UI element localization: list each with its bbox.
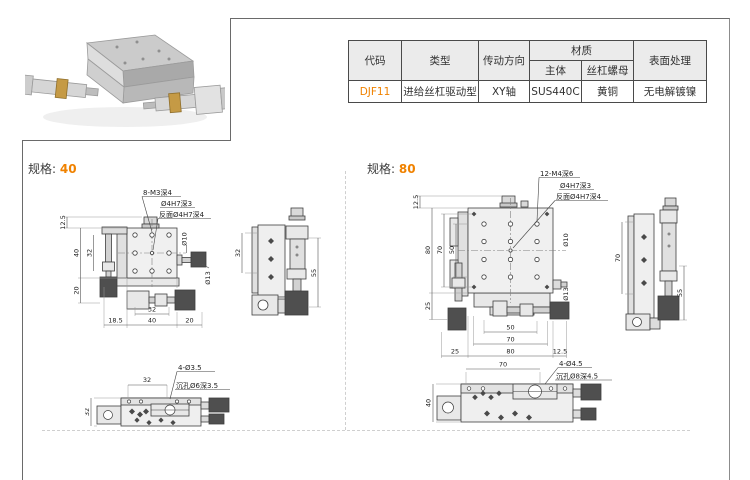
dim-50-left: 50 (448, 246, 456, 254)
stage40-top-parts (100, 217, 206, 310)
cell-material-body: SUS440C (530, 81, 582, 103)
cell-surface: 无电解镀镍 (634, 81, 707, 103)
dim-80-bottom: 80 (506, 348, 514, 356)
spec-table: 代码 类型 传动方向 材质 表面处理 主体 丝杠螺母 DJF11 进给丝杠驱动型… (348, 40, 707, 103)
drawing-80-bottom-view: 70 4-Ø4.5 沉孔Ø8深4.5 40 (425, 358, 635, 432)
brass-nut-right (169, 93, 182, 113)
table-row: DJF11 进给丝杠驱动型 XY轴 SUS440C 黄铜 无电解镀镍 (349, 81, 707, 103)
dim-dia10: Ø10 (181, 232, 189, 245)
callout-8-m3: 8-M3深4 (143, 188, 172, 197)
callout-cbore-d6: 沉孔Ø6深3.5 (176, 381, 218, 390)
col-header-material-nut: 丝杠螺母 (582, 61, 634, 81)
callout-4h7-80: Ø4H7深3 (560, 181, 591, 190)
dim-70-left: 70 (436, 246, 444, 254)
col-header-type: 类型 (402, 41, 479, 81)
dim-70-side: 70 (614, 254, 622, 262)
dim-32-bottom: 32 (148, 306, 156, 314)
drawing-40-top-view: 12.5 40 32 20 32 18.5 40 20 Ø10 Ø13 8-M3… (55, 183, 240, 333)
callout-4-d45: 4-Ø4.5 (559, 360, 583, 368)
dim-50-bottom: 50 (506, 324, 514, 332)
dim-20-left: 20 (73, 286, 81, 294)
product-photo-box (22, 18, 231, 141)
dim-12-5-bottom: 12.5 (553, 348, 567, 356)
dim-40-bottom: 40 (148, 317, 156, 325)
callout-4h7-back: 反面Ø4H7深4 (159, 210, 205, 219)
spec40-label-value: 40 (60, 162, 77, 176)
dim-20-bottom: 20 (185, 317, 193, 325)
dim-40-left-bottom: 40 (425, 399, 433, 407)
stage80-top-parts (448, 196, 569, 330)
dim-32-top: 32 (143, 376, 151, 384)
drawing-80-side-view: 70 55 (612, 192, 692, 332)
dim-80-left: 80 (424, 246, 432, 254)
drawing-40-bottom-view: 32 4-Ø3.5 沉孔Ø6深3.5 32 (85, 340, 250, 432)
callout-4-d35: 4-Ø3.5 (178, 364, 202, 372)
dim-55-side: 55 (310, 269, 318, 277)
dim-32-left: 32 (86, 249, 94, 257)
dim-70-top: 70 (499, 361, 507, 369)
brass-nut-left (55, 79, 68, 99)
dim-32-left-bottom: 32 (85, 408, 91, 416)
col-header-material-body: 主体 (530, 61, 582, 81)
dim-25-left: 25 (424, 302, 432, 310)
cell-material-nut: 黄铜 (582, 81, 634, 103)
dim-40-left: 40 (73, 249, 81, 257)
cell-type: 进给丝杠驱动型 (402, 81, 479, 103)
drawing-80-top-view: 12.5 80 70 50 25 50 70 25 80 12.5 Ø10 Ø1… (390, 168, 620, 368)
stage80-side-foot-hole (633, 318, 642, 327)
cell-direction: XY轴 (479, 81, 530, 103)
col-header-surface: 表面处理 (634, 41, 707, 81)
cell-code: DJF11 (349, 81, 402, 103)
stage40-bottom-parts (97, 398, 229, 426)
dim-32-side: 32 (234, 249, 242, 257)
micrometer-left (25, 75, 99, 102)
callout-12-m4: 12-M4深6 (540, 169, 574, 178)
dim-25-bottom: 25 (451, 348, 459, 356)
col-header-material: 材质 (530, 41, 634, 61)
stage80-bottom-parts (437, 384, 601, 422)
callout-4h7-back-80: 反面Ø4H7深4 (556, 192, 602, 201)
dim-dia13-80: Ø13 (562, 287, 570, 300)
dim-55-side80: 55 (676, 289, 684, 297)
col-header-code: 代码 (349, 41, 402, 81)
photo-shadow (43, 107, 207, 127)
stage40-side-foot-hole (258, 300, 268, 310)
drawing-40-side-view: 32 55 (228, 193, 333, 333)
dim-70-bottom: 70 (506, 336, 514, 344)
stage80-side-parts (626, 198, 679, 330)
col-header-direction: 传动方向 (479, 41, 530, 81)
product-photo (25, 21, 225, 135)
section-divider-vertical (345, 171, 346, 430)
stage40-side-parts (252, 208, 308, 315)
spec40-label-prefix: 规格: (28, 162, 56, 176)
dim-dia10-80: Ø10 (562, 233, 570, 246)
dim-12-5: 12.5 (59, 215, 67, 229)
callout-cbore-d8: 沉孔Ø8深4.5 (556, 372, 598, 381)
callout-4h7: Ø4H7深3 (161, 199, 192, 208)
dim-18-5: 18.5 (108, 317, 122, 325)
spec40-label: 规格: 40 (28, 160, 77, 177)
catalog-page: 代码 类型 传动方向 材质 表面处理 主体 丝杠螺母 DJF11 进给丝杠驱动型… (0, 0, 750, 480)
dim-12-5-top80: 12.5 (412, 195, 420, 209)
dim-dia13: Ø13 (204, 271, 212, 284)
